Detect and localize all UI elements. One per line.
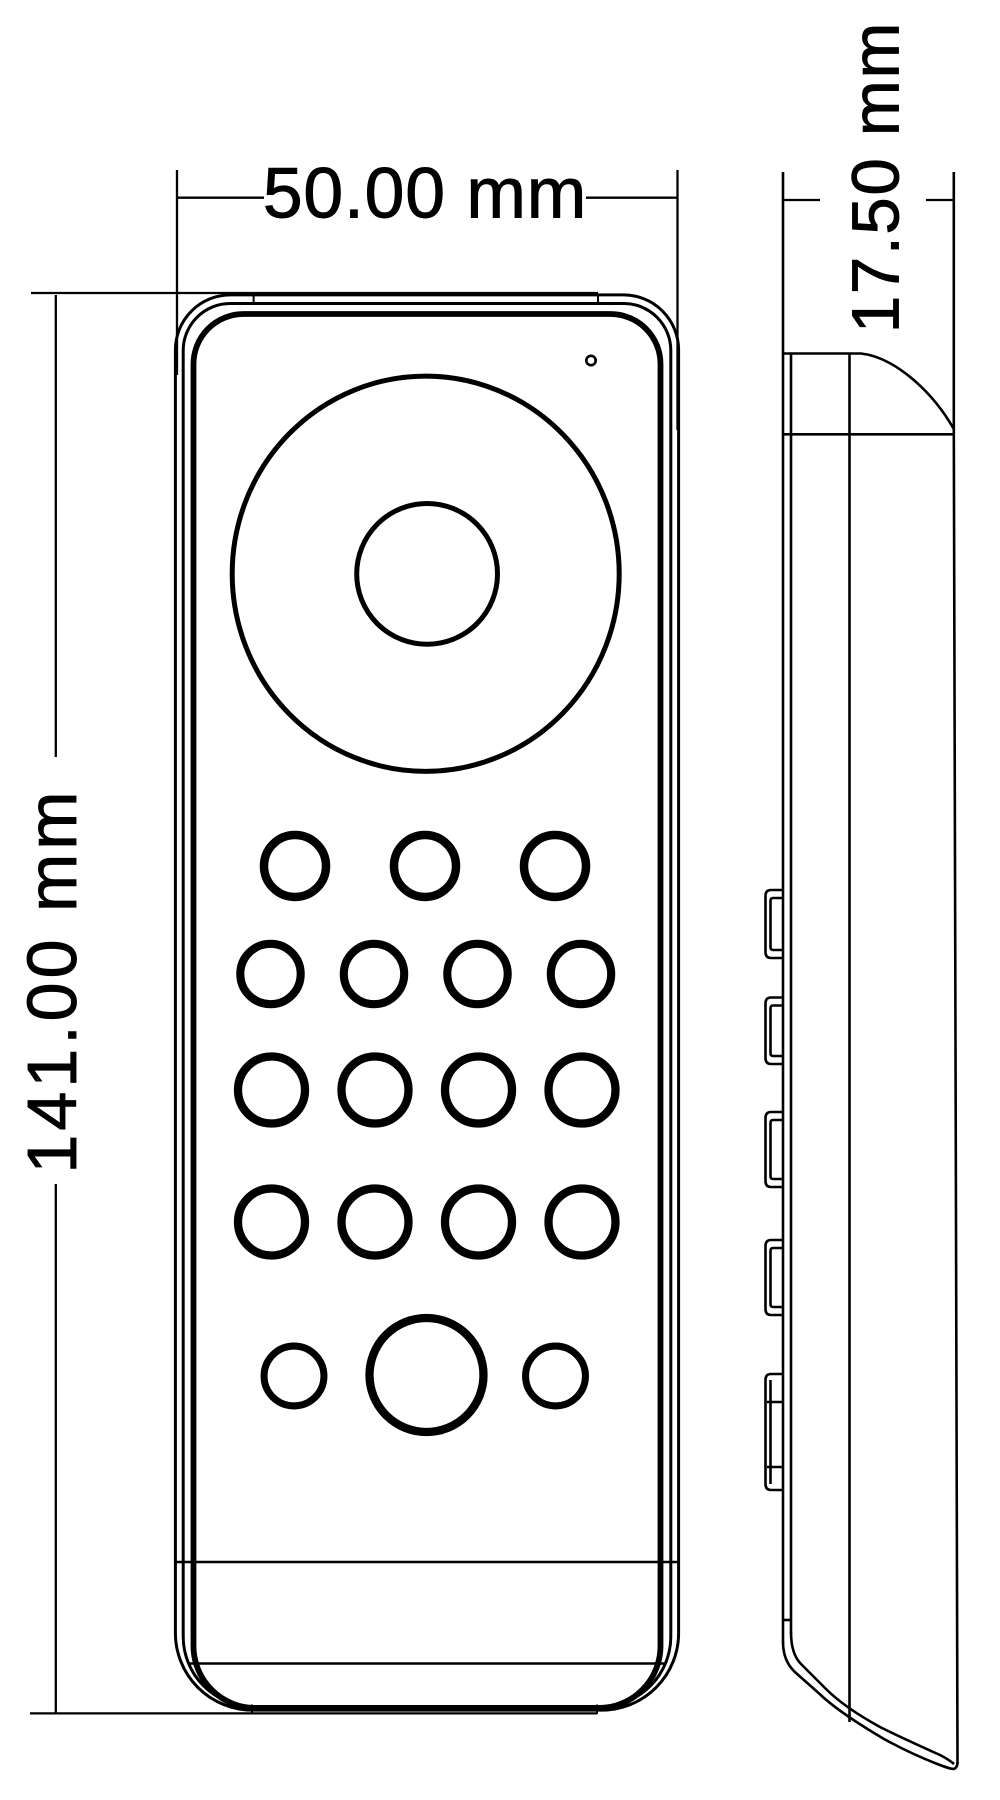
svg-text:141.00 mm: 141.00 mm <box>13 787 91 1173</box>
svg-text:50.00 mm: 50.00 mm <box>263 154 587 234</box>
svg-text:17.50 mm: 17.50 mm <box>839 21 914 333</box>
